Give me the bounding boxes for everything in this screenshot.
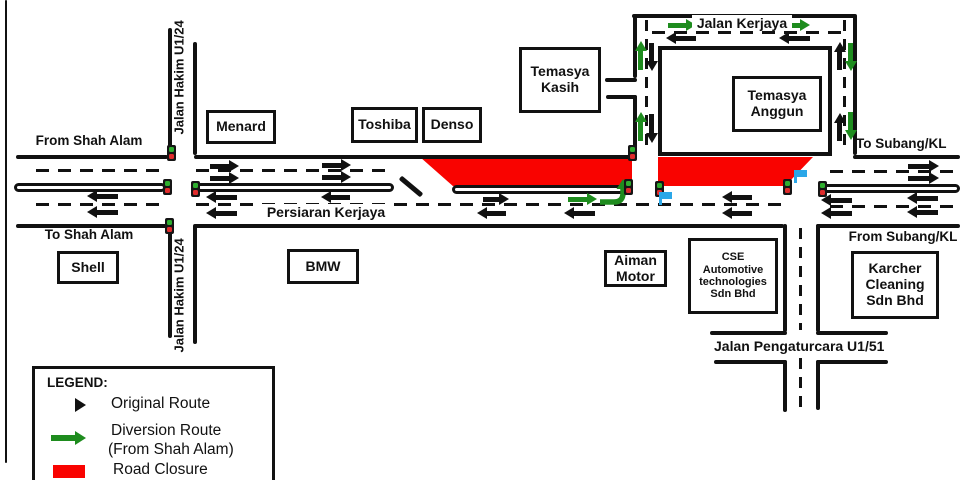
direction-from-shah-alam: From Shah Alam bbox=[28, 133, 150, 148]
building-karcher: Karcher Cleaning Sdn Bhd bbox=[851, 251, 939, 319]
road-closure-swatch bbox=[53, 465, 85, 478]
original-route-arrow-icon bbox=[483, 197, 499, 202]
diversion-route-arrow-icon bbox=[848, 112, 853, 130]
building-label: Toshiba bbox=[358, 117, 411, 133]
diversion-route-arrow-icon bbox=[668, 23, 686, 28]
road-edge-top-west bbox=[16, 155, 168, 159]
lane-dash bbox=[36, 169, 166, 172]
original-route-arrow-icon bbox=[732, 195, 752, 200]
centre-divider bbox=[820, 184, 960, 193]
legend-road-closure: Road Closure bbox=[113, 461, 208, 479]
building-temasya-kasih: Temasya Kasih bbox=[519, 47, 601, 113]
building-label: Karcher Cleaning Sdn Bhd bbox=[854, 261, 936, 308]
diversion-route-arrow-icon bbox=[848, 43, 853, 61]
pengaturcara-wall bbox=[783, 360, 787, 412]
road-edge-bottom-east bbox=[816, 224, 960, 228]
original-route-arrow-icon bbox=[487, 211, 506, 216]
original-route-arrow-icon bbox=[837, 52, 842, 70]
building-cse: CSE Automotive technologies Sdn Bhd bbox=[688, 238, 778, 314]
centre-divider bbox=[196, 183, 394, 192]
kasih-driveway-wall bbox=[606, 95, 637, 99]
direction-to-shah-alam: To Shah Alam bbox=[28, 227, 150, 242]
direction-from-subang-kl: From Subang/KL bbox=[846, 229, 960, 244]
building-label: BMW bbox=[306, 259, 341, 275]
building-label: Denso bbox=[431, 117, 474, 133]
traffic-diversion-map: Menard Toshiba Denso Temasya Kasih Temas… bbox=[0, 0, 960, 480]
building-bmw: BMW bbox=[287, 249, 359, 284]
diversion-route-arrow-icon bbox=[568, 197, 587, 202]
pengaturcara-wall bbox=[710, 331, 787, 335]
original-route-arrow-icon bbox=[322, 163, 341, 168]
building-label: Aiman Motor bbox=[607, 253, 664, 284]
building-denso: Denso bbox=[422, 107, 482, 143]
original-route-arrow-icon bbox=[908, 176, 929, 181]
traffic-signal-icon bbox=[163, 179, 172, 195]
access-road-dash bbox=[645, 20, 648, 150]
legend-original-route: Original Route bbox=[111, 395, 210, 413]
diversion-route-arrow-icon bbox=[51, 435, 75, 441]
road-label-jalan-pengaturcara: Jalan Pengaturcara U1/51 bbox=[714, 338, 880, 354]
road-edge-bottom-mid bbox=[194, 224, 784, 228]
kasih-driveway-wall bbox=[605, 78, 637, 82]
building-aiman-motor: Aiman Motor bbox=[604, 250, 667, 287]
traffic-signal-icon bbox=[818, 181, 827, 197]
original-route-arrow-icon bbox=[837, 123, 842, 141]
original-route-arrow-icon bbox=[649, 114, 654, 133]
building-label: Menard bbox=[216, 119, 266, 135]
traffic-signal-icon bbox=[624, 179, 633, 195]
diversion-route-arrow-icon bbox=[638, 122, 643, 141]
building-label: Temasya Anggun bbox=[735, 88, 819, 119]
legend-diversion-route-line1: Diversion Route bbox=[111, 422, 221, 440]
original-route-arrow-icon bbox=[908, 164, 929, 169]
pengaturcara-dash bbox=[799, 228, 802, 330]
original-route-arrow-icon bbox=[322, 175, 341, 180]
jalan-kerjaya-dash bbox=[652, 31, 842, 34]
lane-merge-mark bbox=[399, 176, 424, 198]
jalan-hakim-wall bbox=[193, 42, 197, 155]
pengaturcara-wall bbox=[783, 224, 787, 332]
original-route-arrow-icon bbox=[831, 211, 852, 216]
building-shell: Shell bbox=[57, 251, 119, 284]
traffic-signal-icon bbox=[628, 145, 637, 161]
pengaturcara-wall bbox=[816, 360, 820, 410]
original-route-arrow-icon bbox=[574, 211, 595, 216]
road-label-jalan-hakim-north: Jalan Hakim U1/24 bbox=[172, 27, 187, 135]
road-edge-top-mid bbox=[194, 155, 635, 159]
lane-dash bbox=[196, 169, 390, 172]
legend-box: LEGEND: Original Route Diversion Route (… bbox=[32, 366, 275, 480]
original-route-arrow-icon bbox=[917, 210, 938, 215]
traffic-signal-icon bbox=[167, 145, 176, 161]
legend-title: LEGEND: bbox=[47, 375, 108, 390]
road-label-jalan-kerjaya: Jalan Kerjaya bbox=[692, 15, 792, 31]
original-route-arrow-icon bbox=[789, 36, 810, 41]
original-route-arrow-icon bbox=[97, 210, 118, 215]
original-route-arrow-icon bbox=[210, 176, 229, 181]
diversion-route-arrow-icon bbox=[638, 51, 643, 70]
original-route-arrow-icon bbox=[331, 195, 350, 200]
traffic-signal-icon bbox=[783, 179, 792, 195]
original-route-arrow-icon bbox=[216, 211, 237, 216]
marshal-flag-icon bbox=[659, 192, 662, 205]
direction-to-subang-kl: To Subang/KL bbox=[856, 136, 960, 151]
building-toshiba: Toshiba bbox=[351, 107, 418, 143]
building-label: Temasya Kasih bbox=[522, 64, 598, 95]
road-edge-top-east bbox=[853, 155, 960, 159]
lane-dash bbox=[36, 203, 166, 206]
pengaturcara-wall bbox=[816, 224, 820, 332]
original-route-arrow-icon bbox=[917, 196, 938, 201]
road-label-jalan-hakim-south: Jalan Hakim U1/24 bbox=[172, 245, 187, 353]
marshal-flag-icon bbox=[794, 170, 797, 183]
original-route-arrow-icon bbox=[97, 194, 118, 199]
traffic-signal-icon bbox=[191, 181, 200, 197]
pengaturcara-wall bbox=[714, 360, 787, 364]
original-route-arrow-icon bbox=[210, 164, 229, 169]
canvas-edge-line bbox=[5, 0, 7, 463]
building-menard: Menard bbox=[206, 110, 276, 144]
original-route-arrow-icon bbox=[216, 195, 237, 200]
road-label-persiaran-kerjaya: Persiaran Kerjaya bbox=[262, 204, 390, 220]
lane-dash bbox=[830, 205, 956, 208]
jalan-hakim-wall bbox=[193, 224, 197, 344]
traffic-signal-icon bbox=[165, 218, 174, 234]
pengaturcara-dash bbox=[799, 358, 802, 412]
pengaturcara-wall bbox=[816, 360, 888, 364]
original-route-arrow-icon bbox=[649, 43, 654, 61]
building-label: CSE Automotive technologies Sdn Bhd bbox=[691, 251, 775, 300]
building-temasya-anggun: Temasya Anggun bbox=[732, 76, 822, 132]
original-route-arrow-icon bbox=[831, 198, 852, 203]
building-label: Shell bbox=[71, 260, 104, 276]
original-route-arrow-icon bbox=[732, 211, 752, 216]
legend-diversion-route-line2: (From Shah Alam) bbox=[108, 441, 234, 459]
pengaturcara-wall bbox=[816, 331, 888, 335]
original-route-arrow-icon bbox=[676, 36, 696, 41]
original-route-arrow-icon bbox=[51, 402, 75, 408]
